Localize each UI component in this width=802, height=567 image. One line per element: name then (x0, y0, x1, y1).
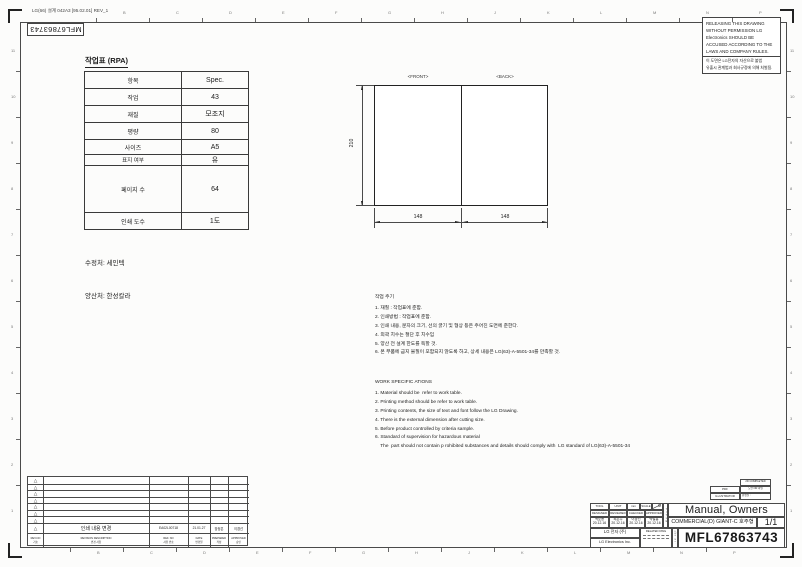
revision-header: REV.NO기호 (28, 533, 43, 547)
zone-label: K (521, 550, 524, 555)
note-line: 3. 인쇄 내용, 문자의 크기, 선의 굵기 및 형상 등은 주어진 도면에 … (375, 323, 560, 332)
tb-unit-value: mm (627, 503, 640, 510)
zone-tick (573, 18, 574, 22)
zone-label: 7 (790, 232, 792, 237)
work-table-title: 작업표 (RPA) (85, 55, 128, 68)
zone-label: B (123, 10, 126, 15)
page-fold-line (461, 85, 462, 206)
zone-tick (335, 548, 336, 552)
related-dwg-label: RELATED DWG (646, 530, 666, 533)
zone-label: M (653, 10, 656, 15)
zone-tick (787, 209, 791, 210)
warning-line-kr: 유출시 관계법과 회사규정에 의해 처벌됨. (706, 65, 778, 71)
tb-tool-header: TOOL (590, 503, 609, 510)
zone-label: 3 (790, 416, 792, 421)
wt-label: 평량 (85, 123, 182, 140)
revision-table: △ △ △ △ △ △ △ △ 인쇄 내용 변경 EA02L00718 21.0… (27, 476, 248, 546)
zone-label: M (627, 550, 630, 555)
zone-label: L (574, 550, 576, 555)
zone-label: J (494, 10, 496, 15)
zone-label: 10 (11, 94, 15, 99)
revision-header: APPROVED승인 (228, 533, 249, 547)
revision-ref-no: EA02L00718 (149, 523, 188, 533)
back-label: <BACK> (475, 74, 535, 79)
file-type-pdf: PDF (710, 486, 740, 493)
revision-header: DATE변경일 (188, 533, 210, 547)
zone-tick (16, 117, 20, 118)
dim-height: 210 (349, 135, 355, 151)
zone-tick (600, 548, 601, 552)
zone-tick (70, 548, 71, 552)
corner-mark (8, 9, 10, 23)
tb-dwg-number: MFL67863743 (678, 528, 785, 548)
zone-label: C (150, 550, 153, 555)
wt-value: 1도 (182, 213, 249, 230)
wt-value: 64 (182, 166, 249, 213)
zone-label: H (415, 550, 418, 555)
zone-label: 4 (790, 370, 792, 375)
zone-label: H (441, 10, 444, 15)
revision-triangle-icon: △ (30, 491, 42, 496)
warning-line: RELEASING THIS DRAWING (706, 20, 778, 27)
revision-approved: 이경선 (228, 523, 249, 533)
warning-line: ACCUSED ACCORDING TO THE (706, 41, 778, 48)
projection-symbol-icon (653, 504, 662, 509)
note-line: 3. Printing contents, the size of text a… (375, 408, 630, 417)
zone-tick (441, 548, 442, 552)
zone-label: D (203, 550, 206, 555)
complete-box-line: 도면 OR 파일 (740, 486, 771, 493)
projection-symbol-cell (652, 503, 663, 510)
revision-triangle-icon: △ (30, 478, 42, 483)
notes-en-title: WORK SPECIFIC ATIONS (375, 379, 630, 388)
warning-line: Electronics SHOULD BE (706, 34, 778, 41)
zone-label: G (388, 10, 391, 15)
note-line: The part should not contain p rohibited … (375, 443, 630, 452)
zone-label: B (97, 550, 100, 555)
warning-line: WITHOUT PERMISSION LG (706, 27, 778, 34)
wt-label: 항목 (85, 72, 182, 89)
zone-label: G (362, 550, 365, 555)
ext-line (547, 208, 548, 228)
front-label: <FRONT> (388, 74, 448, 79)
wt-value: 모조지 (182, 106, 249, 123)
zone-tick (679, 18, 680, 22)
tb-sign-header: CHECKED (627, 510, 645, 517)
zone-label: 9 (11, 140, 13, 145)
dim-width-front: 148 (388, 214, 448, 220)
zone-label: 11 (11, 48, 15, 53)
zone-label: 10 (790, 94, 794, 99)
ext-line (356, 205, 374, 206)
wt-label: 표지 여부 (85, 155, 182, 166)
rotated-doc-code: MFL67863743 (30, 25, 82, 34)
zone-label: K (547, 10, 550, 15)
drawing-sheet: LG(66) 설계 042A3 [95.02.01] REV_1 MFL6786… (0, 0, 802, 567)
dim-arrow-icon (455, 221, 460, 223)
zone-tick (16, 439, 20, 440)
zone-label: J (468, 550, 470, 555)
dim-line (374, 222, 548, 223)
zone-label: L (600, 10, 602, 15)
ext-line (461, 208, 462, 228)
zone-tick (494, 548, 495, 552)
zone-label: E (256, 550, 259, 555)
zone-tick (653, 548, 654, 552)
wt-label: 인쇄 도수 (85, 213, 182, 230)
dim-width-back: 148 (475, 214, 535, 220)
wt-label: 사이즈 (85, 140, 182, 155)
zone-tick (229, 548, 230, 552)
vendor-notes: 수정처: 세인텍 양산처: 한성칼라 (85, 236, 130, 324)
rotated-doc-code-box: MFL67863743 (27, 23, 84, 36)
zone-tick (16, 209, 20, 210)
complete-box-line: 완성일 : (740, 493, 771, 500)
wt-value: Spec. (182, 72, 249, 89)
tb-signature: 박철흥20.12.16 (645, 517, 663, 528)
file-type-illustrator: ILLUSTRATOR (710, 493, 740, 500)
signer-date: 20.12.16 (593, 522, 606, 526)
tb-company-en: LG Electronics Inc. (590, 538, 640, 548)
note-line: 1. 재질 : 작업표에 준함. (375, 305, 560, 314)
note-line: 5. 양산 전 설계 한도를 득할 것. (375, 341, 560, 350)
zone-label: P (733, 550, 736, 555)
revision-date: 21.01.27 (188, 523, 210, 533)
zone-tick (361, 18, 362, 22)
related-dwg-line (643, 538, 669, 539)
zone-tick (787, 485, 791, 486)
note-line: 4. There is the external dimension after… (375, 417, 630, 426)
wt-label: 재질 (85, 106, 182, 123)
zone-label: 8 (790, 186, 792, 191)
zone-label: 9 (790, 140, 792, 145)
zone-label: 1 (790, 508, 792, 513)
revision-triangle-icon: △ (30, 526, 42, 531)
zone-label: 1 (11, 508, 13, 513)
vendor-line: 양산처: 한성칼라 (85, 291, 130, 302)
zone-label: 6 (790, 278, 792, 283)
zone-label: N (680, 550, 683, 555)
zone-tick (706, 548, 707, 552)
tb-sign-header: DESIGNED (590, 510, 609, 517)
signer-date: 20.12.16 (611, 522, 624, 526)
zone-tick (16, 485, 20, 486)
signer-date: 20.12.16 (629, 522, 642, 526)
vendor-line: 수정처: 세인텍 (85, 258, 130, 269)
zone-tick (547, 548, 548, 552)
note-line: 2. 인쇄방법 : 작업표에 준함. (375, 314, 560, 323)
zone-tick (16, 71, 20, 72)
zone-tick (16, 301, 20, 302)
zone-tick (787, 347, 791, 348)
signer-date: 20.12.16 (647, 522, 660, 526)
zone-tick (520, 18, 521, 22)
warning-line: LAWS AND COMPANY RULES. (706, 48, 778, 55)
note-line: 1. Material should be refer to work tabl… (375, 390, 630, 399)
zone-label: 4 (11, 370, 13, 375)
zone-tick (626, 18, 627, 22)
note-line: 6. 본 부품에 금지 물질이 포함되지 않도록 하고, 상세 내용은 LG(6… (375, 349, 560, 358)
notes-english: WORK SPECIFIC ATIONS 1. Material should … (375, 379, 630, 452)
corner-mark (8, 543, 10, 557)
notes-korean: 작업 주기 1. 재질 : 작업표에 준함. 2. 인쇄방법 : 작업표에 준함… (375, 294, 560, 358)
zone-tick (202, 18, 203, 22)
zone-label: F (309, 550, 311, 555)
wt-label: 페이지 수 (85, 166, 182, 213)
zone-label: 11 (790, 48, 794, 53)
note-line: 5. Before product controlled by criteria… (375, 426, 630, 435)
zone-label: P (759, 10, 762, 15)
zone-tick (467, 18, 468, 22)
tb-subtitle: COMMERCIAL(D) GIANT-C 호주형 (668, 517, 757, 528)
zone-tick (308, 18, 309, 22)
ext-line (356, 85, 374, 86)
zone-tick (149, 18, 150, 22)
work-table: 항목Spec. 작업43 재질모조지 평량80 사이즈A5 표지 여부유 페이지… (84, 71, 249, 230)
dim-arrow-icon (361, 201, 363, 206)
zone-label: 2 (790, 462, 792, 467)
note-line: 6. Standard of supervision for hazardous… (375, 434, 630, 443)
zone-tick (255, 18, 256, 22)
zone-tick (16, 347, 20, 348)
zone-label: 8 (11, 186, 13, 191)
related-dwg-line (643, 535, 669, 536)
zone-tick (787, 439, 791, 440)
corner-mark (8, 556, 22, 558)
tb-signature: 백호용20.12.16 (590, 517, 609, 528)
revision-header: REVISION DESCRIPTION변경 사항 (43, 533, 149, 547)
zone-tick (787, 255, 791, 256)
confidentiality-warning: RELEASING THIS DRAWING WITHOUT PERMISSIO… (702, 17, 781, 74)
ext-line (374, 208, 375, 228)
corner-mark (792, 543, 794, 557)
zone-label: N (706, 10, 709, 15)
zone-tick (787, 71, 791, 72)
wt-value: 유 (182, 155, 249, 166)
zone-label: C (176, 10, 179, 15)
zone-tick (388, 548, 389, 552)
dim-arrow-icon (542, 221, 547, 223)
zone-label: 5 (790, 324, 792, 329)
tb-sign-header: APPROVED (645, 510, 663, 517)
revision-triangle-icon: △ (30, 498, 42, 503)
tb-scale-header: SCALE (640, 503, 652, 510)
zone-label: D (229, 10, 232, 15)
tb-unit-header: UNIT (609, 503, 627, 510)
zone-label: 2 (11, 462, 13, 467)
tb-sign-header: REVIEWED (609, 510, 627, 517)
wt-label: 작업 (85, 89, 182, 106)
tb-sheet-number: 1/1 (757, 517, 785, 528)
zone-label: 3 (11, 416, 13, 421)
dim-arrow-icon (463, 221, 468, 223)
tb-related-dwg: RELATED DWG (640, 528, 672, 548)
zone-tick (787, 117, 791, 118)
zone-tick (16, 163, 20, 164)
zone-tick (176, 548, 177, 552)
revision-triangle-icon: △ (30, 518, 42, 523)
zone-tick (787, 393, 791, 394)
zone-tick (787, 301, 791, 302)
complete-box-line: 2D COMPLETED (740, 479, 771, 486)
revision-header: REF. NO사유 번호 (149, 533, 188, 547)
note-line: 2. Printing method should be refer to wo… (375, 399, 630, 408)
zone-label: F (335, 10, 337, 15)
wt-value: 80 (182, 123, 249, 140)
zone-tick (96, 18, 97, 22)
revision-prepared: 장정은 (210, 523, 228, 533)
zone-label: 7 (11, 232, 13, 237)
zone-tick (414, 18, 415, 22)
revision-description: 인쇄 내용 변경 (43, 523, 149, 533)
format-stamp: LG(66) 설계 042A3 [95.02.01] REV_1 (32, 8, 108, 14)
dim-arrow-icon (375, 221, 380, 223)
zone-tick (16, 393, 20, 394)
revision-header: PREPARED작성 (210, 533, 228, 547)
tb-signature: 최은주20.12.16 (609, 517, 627, 528)
wt-value: 43 (182, 89, 249, 106)
revision-triangle-icon: △ (30, 485, 42, 490)
zone-tick (787, 163, 791, 164)
corner-mark (792, 9, 794, 23)
tb-title: Manual, Owners (668, 503, 785, 517)
zone-tick (282, 548, 283, 552)
dim-line (362, 85, 363, 206)
notes-kr-title: 작업 주기 (375, 294, 560, 303)
revision-triangle-icon: △ (30, 511, 42, 516)
revision-triangle-icon: △ (30, 504, 42, 509)
zone-tick (732, 18, 733, 22)
wt-value: A5 (182, 140, 249, 155)
note-line: 4. 외곽 치수는 절단 후 치수임 (375, 332, 560, 341)
zone-label: E (282, 10, 285, 15)
zone-tick (123, 548, 124, 552)
tb-company-kr: LG 전자 (주) (590, 528, 640, 538)
dim-arrow-icon (361, 85, 363, 90)
zone-label: 6 (11, 278, 13, 283)
zone-label: 5 (11, 324, 13, 329)
zone-tick (16, 255, 20, 256)
corner-mark (8, 9, 22, 11)
tb-signature: 이경선20.12.16 (627, 517, 645, 528)
